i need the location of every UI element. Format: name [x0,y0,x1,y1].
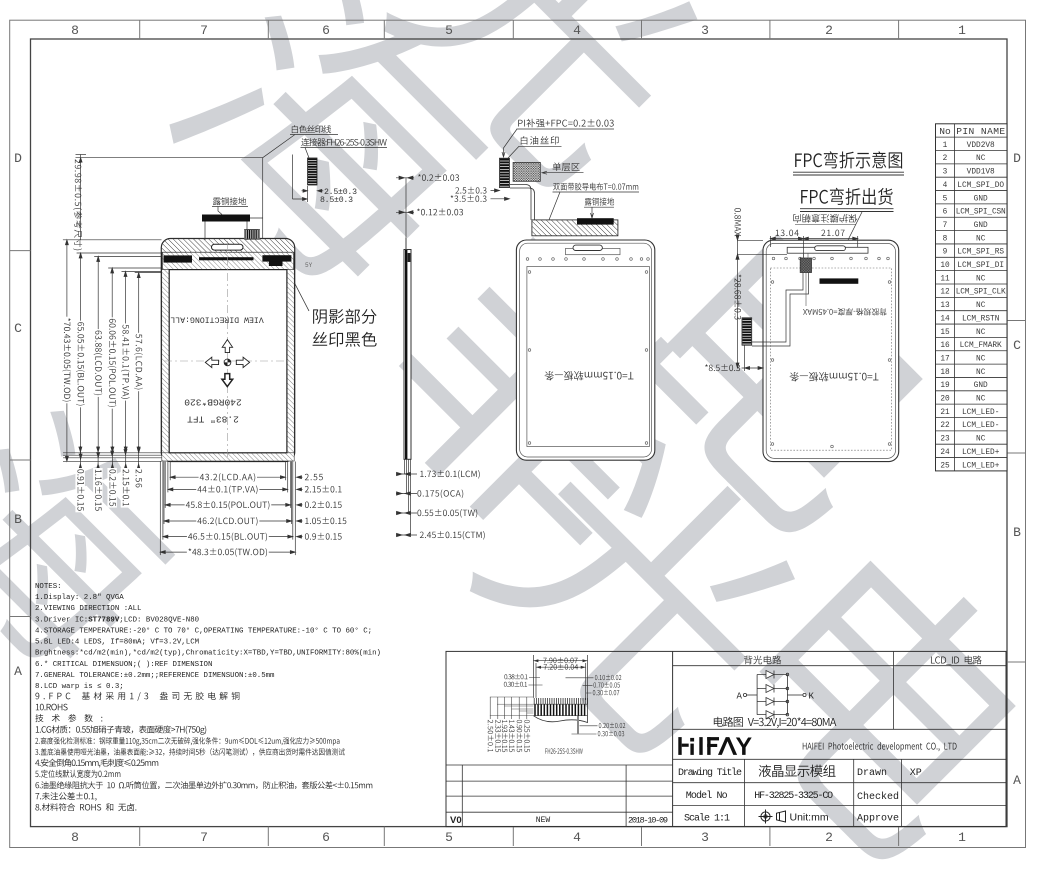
svg-text:6.* CRITICAL DIMENSUON;( ):REF: 6.* CRITICAL DIMENSUON;( ):REF DIMENSION [35,661,212,669]
svg-text:D: D [14,151,22,166]
svg-text:21: 21 [940,409,950,417]
svg-text:Drawn: Drawn [857,768,887,779]
svg-text:LCM_LED+: LCM_LED+ [962,449,1000,457]
svg-text:5: 5 [445,23,453,38]
svg-text:8: 8 [71,23,79,38]
svg-text:5: 5 [943,195,948,203]
svg-text:NC: NC [976,396,986,404]
svg-text:C: C [14,321,22,336]
svg-text:8: 8 [943,235,948,243]
svg-text:7: 7 [200,23,208,38]
svg-text:8.LCD warp is ≤ 0.3;: 8.LCD warp is ≤ 0.3; [35,683,124,691]
svg-text:V0: V0 [450,815,462,826]
svg-text:HF-32825-3325-CO: HF-32825-3325-CO [754,791,833,802]
svg-text:3.Driver IC:ST7789V;LCD: BV028: 3.Driver IC:ST7789V;LCD: BV028QVE-N80 [35,616,199,624]
svg-text:LCM_SPI_RS: LCM_SPI_RS [957,249,1004,257]
svg-text:LCM_SPI_CSN: LCM_SPI_CSN [956,209,1006,217]
svg-text:2.83″ TFT: 2.83″ TFT [187,414,239,425]
svg-text:4: 4 [573,23,581,38]
svg-text:1: 1 [958,23,966,38]
svg-text:5.BL LED:4 LEDS, If=80mA; Vf=3: 5.BL LED:4 LEDS, If=80mA; Vf=3.2V,LCM [35,639,199,647]
svg-text:Scale 1:1: Scale 1:1 [684,813,730,825]
svg-text:LCM_LED+: LCM_LED+ [962,462,1000,470]
svg-text:LCM_SPI_DI: LCM_SPI_DI [957,262,1004,270]
svg-text:240RGB*320: 240RGB*320 [184,397,242,408]
svg-text:Brghtness:*cd/m2(min),*cd/m2(t: Brghtness:*cd/m2(min),*cd/m2(typ),Chroma… [35,650,381,658]
svg-text:NC: NC [976,369,986,377]
svg-text:GND: GND [974,382,988,390]
svg-text:6: 6 [322,830,330,845]
svg-text:NC: NC [976,275,986,283]
svg-text:VDD2V8: VDD2V8 [967,142,995,150]
svg-text:LCM_LED-: LCM_LED- [962,409,999,417]
svg-text:NOTES:: NOTES: [35,583,62,591]
svg-text:12: 12 [940,289,950,297]
svg-text:D: D [1013,151,1021,166]
svg-text:8: 8 [71,830,79,845]
svg-text:2: 2 [825,23,833,38]
svg-text:Unit:mm: Unit:mm [790,812,829,824]
svg-text:17: 17 [940,355,950,363]
svg-text:13: 13 [940,302,950,310]
svg-text:GND: GND [974,222,988,230]
svg-text:20: 20 [940,396,950,404]
svg-text:3: 3 [943,169,948,177]
svg-text:NC: NC [976,302,986,310]
svg-text:PIN NAME: PIN NAME [956,126,1005,137]
svg-text:1: 1 [958,830,966,845]
svg-text:25: 25 [940,462,950,470]
svg-text:2.VIEWING DIRECTION :ALL: 2.VIEWING DIRECTION :ALL [35,605,141,613]
svg-text:GND: GND [974,195,988,203]
svg-text:A: A [1013,773,1021,788]
svg-text:Approve: Approve [857,814,899,825]
svg-text:7: 7 [200,830,208,845]
svg-text:24: 24 [940,449,950,457]
svg-text:NC: NC [976,355,986,363]
svg-text:4: 4 [573,830,581,845]
svg-text:No: No [939,126,951,137]
svg-text:5Y: 5Y [305,262,313,269]
svg-text:K: K [809,692,815,702]
svg-text:A: A [737,692,743,702]
svg-text:1.Display: 2.8″ QVGA: 1.Display: 2.8″ QVGA [35,594,124,602]
svg-text:10: 10 [940,262,950,270]
svg-text:3: 3 [701,23,709,38]
svg-text:11: 11 [940,275,950,283]
svg-text:LCM_SPI_DO: LCM_SPI_DO [957,182,1004,190]
svg-text:7: 7 [943,222,948,230]
svg-text:B: B [14,512,22,527]
svg-text:9: 9 [943,249,948,257]
svg-text:VIEW DIRECTIONG:ALL: VIEW DIRECTIONG:ALL [170,315,263,324]
svg-text:15: 15 [940,329,950,337]
svg-text:VDD1V8: VDD1V8 [967,169,995,177]
svg-text:LCM_FMARK: LCM_FMARK [960,342,1002,350]
svg-text:Drawing Title: Drawing Title [678,767,742,779]
svg-text:2: 2 [825,830,833,845]
svg-text:4.STORAGE TEMPERATURE:-20° C T: 4.STORAGE TEMPERATURE:-20° C TO 70° C,OP… [35,627,372,636]
svg-text:5: 5 [445,830,453,845]
svg-text:B: B [1013,525,1021,540]
svg-text:A: A [14,664,22,679]
svg-text:Checked: Checked [857,791,899,803]
svg-text:8.5±0.3: 8.5±0.3 [320,196,353,205]
svg-text:14: 14 [940,315,950,323]
svg-text:22: 22 [940,422,950,430]
svg-text:NC: NC [976,329,986,337]
svg-text:6: 6 [943,209,948,217]
svg-text:XP: XP [910,768,922,779]
svg-text:2: 2 [943,155,948,163]
svg-text:NEW: NEW [536,816,551,825]
svg-text:4: 4 [943,182,948,190]
svg-text:Model No: Model No [686,790,728,802]
svg-text:LCM_SPI_CLK: LCM_SPI_CLK [956,289,1006,297]
svg-text:2018-10-09: 2018-10-09 [628,816,668,826]
svg-text:LCM_LED-: LCM_LED- [962,422,999,430]
svg-text:NC: NC [976,235,986,243]
svg-text:1: 1 [943,142,948,150]
svg-text:C: C [1013,338,1021,353]
svg-text:6: 6 [322,23,330,38]
svg-text:23: 23 [940,436,950,444]
svg-text:NC: NC [976,436,986,444]
svg-text:LCM_RSTN: LCM_RSTN [962,315,1000,323]
svg-text:NC: NC [976,155,986,163]
svg-text:3: 3 [701,830,709,845]
svg-text:16: 16 [940,342,950,350]
svg-text:19: 19 [940,382,950,390]
svg-text:18: 18 [940,369,950,377]
svg-text:7.GENERAL TOLERANCE:±0.2mm;;RE: 7.GENERAL TOLERANCE:±0.2mm;;REFERENCE DI… [35,672,275,680]
